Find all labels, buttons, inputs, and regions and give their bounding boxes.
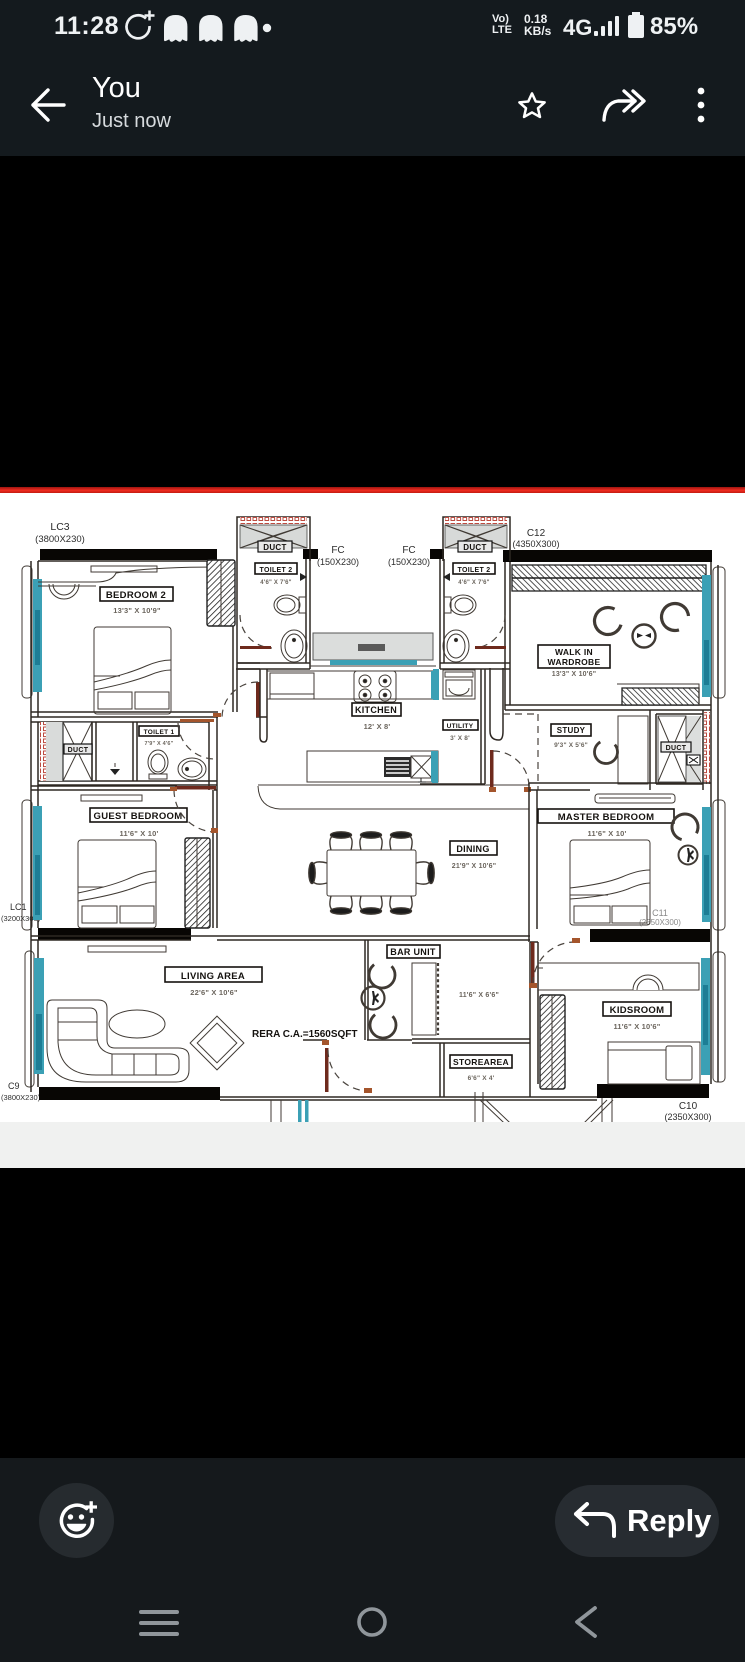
svg-text:RERA C.A.=1560SQFT: RERA C.A.=1560SQFT: [252, 1029, 358, 1040]
svg-text:TOILET 2: TOILET 2: [260, 567, 293, 574]
svg-text:DUCT: DUCT: [666, 745, 687, 752]
svg-text:C12: C12: [527, 528, 546, 539]
svg-text:(150X230): (150X230): [317, 557, 359, 567]
svg-text:DUCT: DUCT: [463, 543, 486, 552]
svg-text:KITCHEN: KITCHEN: [355, 705, 397, 715]
svg-text:STOREAREA: STOREAREA: [453, 1057, 509, 1067]
svg-text:22'6" X 10'6": 22'6" X 10'6": [190, 988, 238, 997]
svg-text:11'6" X 6'6": 11'6" X 6'6": [459, 992, 499, 999]
svg-text:C11: C11: [652, 908, 668, 918]
svg-text:12' X 8': 12' X 8': [364, 722, 391, 731]
svg-text:(150X230): (150X230): [388, 557, 430, 567]
svg-text:(3800X230): (3800X230): [35, 534, 85, 545]
svg-text:GUEST BEDROOM: GUEST BEDROOM: [94, 811, 183, 822]
svg-text:DUCT: DUCT: [263, 543, 286, 552]
svg-text:UTILITY: UTILITY: [447, 723, 474, 730]
svg-text:FC: FC: [402, 545, 415, 556]
svg-text:4'6" X 7'6": 4'6" X 7'6": [260, 580, 291, 586]
svg-text:STUDY: STUDY: [557, 726, 586, 735]
svg-text:9'3" X 5'6": 9'3" X 5'6": [554, 742, 588, 749]
svg-text:WALK IN: WALK IN: [555, 647, 593, 657]
svg-text:C10: C10: [679, 1101, 698, 1112]
svg-text:MASTER BEDROOM: MASTER BEDROOM: [558, 812, 655, 823]
svg-text:DUCT: DUCT: [68, 747, 89, 754]
svg-text:LIVING AREA: LIVING AREA: [181, 971, 245, 982]
svg-text:(3800X230): (3800X230): [1, 1093, 41, 1102]
svg-text:BAR UNIT: BAR UNIT: [390, 947, 436, 957]
svg-text:13'3" X 10'9": 13'3" X 10'9": [113, 606, 161, 615]
svg-text:6'6" X 4': 6'6" X 4': [468, 1075, 495, 1082]
svg-text:FC: FC: [331, 545, 344, 556]
svg-text:TOILET 2: TOILET 2: [458, 567, 491, 574]
svg-text:11'6" X 10': 11'6" X 10': [120, 829, 159, 838]
svg-text:TOILET 1: TOILET 1: [144, 729, 175, 736]
svg-text:KIDSROOM: KIDSROOM: [610, 1005, 665, 1016]
svg-text:4'6" X 7'6": 4'6" X 7'6": [458, 580, 489, 586]
svg-text:DINING: DINING: [456, 844, 489, 854]
svg-text:LC1: LC1: [10, 902, 27, 912]
svg-text:11'6" X 10': 11'6" X 10': [588, 829, 627, 838]
svg-text:C9: C9: [8, 1081, 20, 1091]
svg-text:13'3" X 10'6": 13'3" X 10'6": [552, 671, 596, 678]
svg-text:LC3: LC3: [50, 521, 69, 533]
svg-text:(2350X300): (2350X300): [664, 1112, 711, 1122]
svg-text:11'6" X 10'6": 11'6" X 10'6": [613, 1022, 660, 1031]
svg-text:21'9" X 10'6": 21'9" X 10'6": [452, 863, 496, 870]
svg-text:BEDROOM 2: BEDROOM 2: [106, 590, 166, 601]
svg-text:3' X 8': 3' X 8': [450, 735, 470, 742]
svg-text:7'9" X 4'6": 7'9" X 4'6": [145, 741, 174, 747]
svg-text:(4350X300): (4350X300): [512, 539, 559, 549]
svg-text:WARDROBE: WARDROBE: [548, 657, 601, 667]
